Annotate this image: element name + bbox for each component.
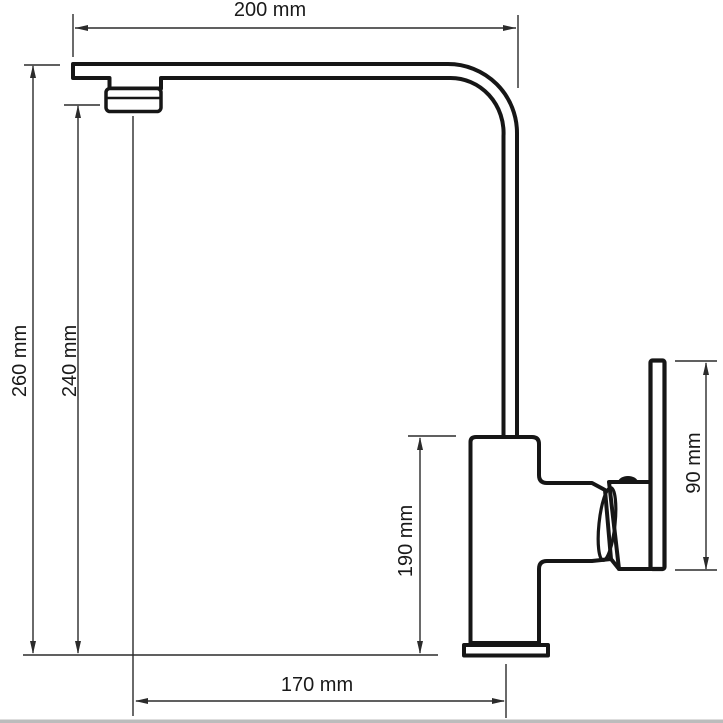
arrowhead-right — [492, 698, 505, 704]
base-plate — [464, 645, 548, 656]
arrowhead-down — [703, 557, 709, 570]
arrowhead-up — [75, 105, 81, 118]
arrowhead-down — [75, 641, 81, 654]
technical-drawing-canvas: 200 mm 260 mm 240 mm 190 mm — [0, 0, 723, 723]
arrowhead-down — [417, 641, 423, 654]
dim-label-190mm: 190 mm — [395, 505, 417, 577]
dimension-170mm: 170 mm — [133, 116, 506, 718]
arrowhead-down — [30, 641, 36, 654]
spout-and-riser-outline — [73, 64, 517, 437]
arrowhead-left — [75, 25, 88, 31]
faucet-dimension-diagram: 200 mm 260 mm 240 mm 190 mm — [0, 0, 723, 723]
arrowhead-left — [135, 698, 148, 704]
dimension-240mm: 240 mm — [59, 105, 100, 654]
arrowhead-right — [503, 25, 516, 31]
dimension-90mm: 90 mm — [675, 361, 717, 570]
dim-label-200mm: 200 mm — [234, 0, 306, 21]
dim-label-170mm: 170 mm — [281, 674, 353, 696]
arrowhead-up — [30, 65, 36, 78]
arrowhead-up — [703, 362, 709, 375]
handle-lever — [651, 361, 665, 570]
cartridge-cap-bump — [618, 476, 638, 482]
aerator-block — [106, 89, 161, 112]
body-outline — [471, 437, 612, 643]
dimension-260mm: 260 mm — [9, 65, 60, 654]
dim-label-90mm: 90 mm — [683, 432, 705, 493]
dimension-190mm: 190 mm — [395, 436, 456, 654]
faucet-outline — [73, 64, 665, 656]
arrowhead-up — [417, 437, 423, 450]
dim-label-260mm: 260 mm — [9, 325, 31, 397]
image-edge-artifact — [0, 720, 723, 723]
dim-label-240mm: 240 mm — [59, 325, 81, 397]
